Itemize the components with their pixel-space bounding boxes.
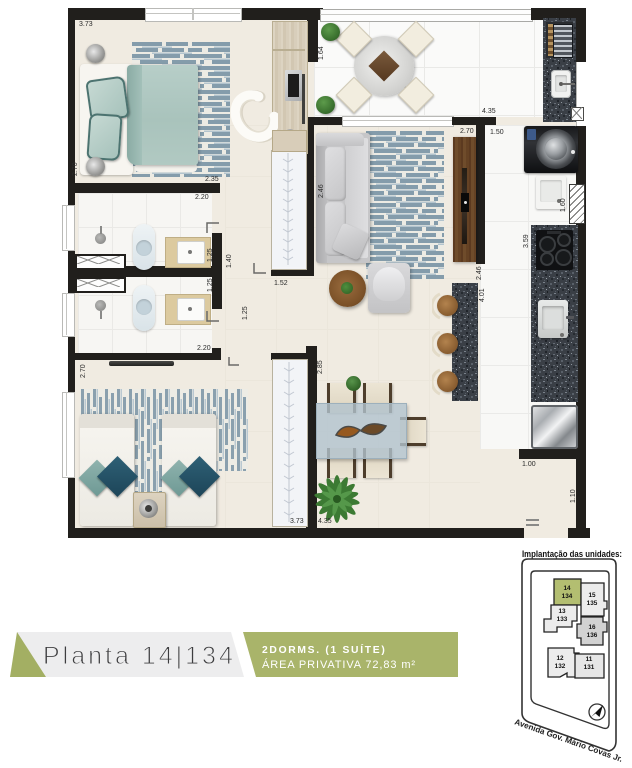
svg-text:11: 11 xyxy=(586,656,593,663)
svg-text:ÁREA PRIVATIVA 72,83 m²: ÁREA PRIVATIVA 72,83 m² xyxy=(262,658,416,671)
svg-text:131: 131 xyxy=(584,664,595,671)
svg-text:136: 136 xyxy=(587,632,598,639)
svg-text:16: 16 xyxy=(588,624,596,631)
svg-text:15: 15 xyxy=(588,592,596,599)
svg-text:132: 132 xyxy=(555,663,566,670)
svg-text:134: 134 xyxy=(562,593,573,600)
svg-text:133: 133 xyxy=(557,616,568,623)
svg-text:135: 135 xyxy=(587,600,598,607)
svg-text:2DORMS. (1 SUÍTE): 2DORMS. (1 SUÍTE) xyxy=(262,643,386,656)
svg-text:13: 13 xyxy=(558,608,566,615)
svg-text:14: 14 xyxy=(563,585,571,592)
svg-text:Planta 14|134: Planta 14|134 xyxy=(43,642,236,670)
svg-text:Implantação das unidades:: Implantação das unidades: xyxy=(522,549,622,559)
svg-text:12: 12 xyxy=(556,655,564,662)
